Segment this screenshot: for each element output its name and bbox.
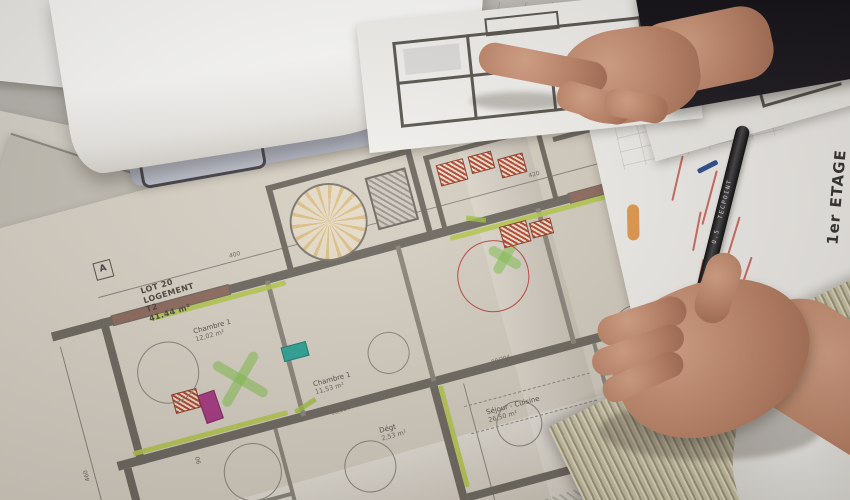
room-label: Chambre 1 11,53 m² bbox=[312, 371, 353, 396]
section-marker-a: A bbox=[92, 259, 114, 281]
dimension-value: 90 bbox=[194, 456, 203, 465]
dimension-value: 460 bbox=[82, 469, 92, 482]
room-label: Dégt 2,53 m² bbox=[378, 420, 407, 442]
finger-shadow bbox=[470, 92, 570, 110]
bathroom-fixture bbox=[436, 158, 469, 186]
red-handwriting bbox=[692, 211, 702, 251]
lot-label: LOT 20 LOGEMENT T2 41.44 m² bbox=[139, 272, 200, 324]
room-label: Chambre 1 12,02 m² bbox=[192, 318, 233, 343]
orange-highlighter-mark bbox=[627, 204, 640, 240]
photo-scene: 400 405 420 460 90 bbox=[0, 0, 850, 500]
plan-wall bbox=[99, 318, 146, 466]
plan-room-fill bbox=[403, 43, 461, 75]
plan-wall bbox=[484, 11, 559, 37]
door-swing-circle bbox=[363, 327, 414, 378]
red-handwriting bbox=[671, 156, 683, 201]
plan-wall bbox=[124, 467, 167, 500]
dimension-line bbox=[60, 347, 136, 500]
sheet-title: 1er ETAGE bbox=[823, 149, 849, 246]
